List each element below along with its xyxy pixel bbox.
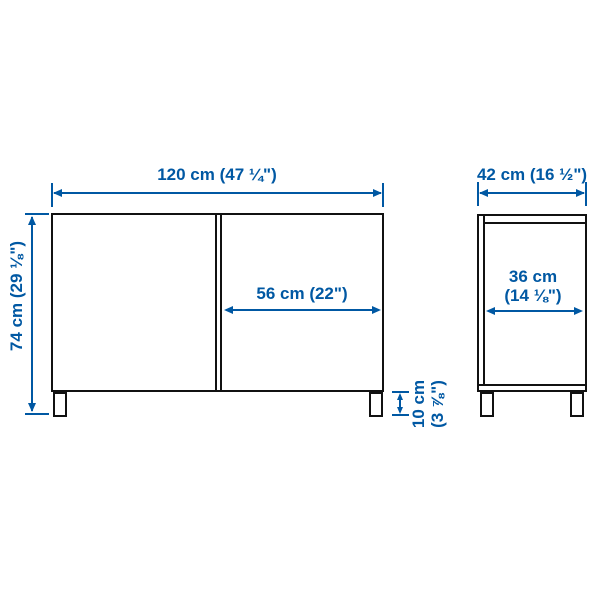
- inner-depth-dimension-line: [488, 310, 581, 312]
- side-top-panel-line: [485, 222, 585, 224]
- side-depth-dimension-line: [480, 192, 584, 194]
- front-height-extension-tick-bottom: [25, 413, 49, 415]
- arrowhead-up-icon: [397, 393, 403, 400]
- inner-depth-label-line2: (14 ⅛"): [473, 286, 593, 305]
- leg-height-label-line2: (3 ⅞"): [428, 369, 447, 439]
- arrowhead-right-icon: [372, 306, 381, 314]
- arrowhead-left-icon: [479, 189, 488, 197]
- side-leg-left: [480, 392, 494, 417]
- side-bottom-panel-line: [479, 384, 585, 386]
- leg-height-label-line1: 10 cm: [409, 369, 428, 439]
- arrowhead-right-icon: [373, 189, 382, 197]
- arrowhead-down-icon: [28, 403, 36, 412]
- arrowhead-right-icon: [576, 189, 585, 197]
- front-height-dimension-line: [31, 217, 33, 411]
- front-leg-right: [369, 392, 383, 417]
- arrowhead-right-icon: [574, 307, 583, 315]
- arrowhead-left-icon: [486, 307, 495, 315]
- front-height-dimension-label: 74 cm (29 ⅛"): [7, 211, 27, 381]
- leg-height-extension-tick-bottom: [392, 414, 409, 416]
- arrowhead-left-icon: [224, 306, 233, 314]
- arrowhead-down-icon: [397, 407, 403, 414]
- front-height-extension-tick-top: [25, 213, 49, 215]
- inner-depth-dimension-label: 36 cm (14 ⅛"): [473, 267, 593, 305]
- door-width-dimension-line: [226, 309, 379, 311]
- arrowhead-up-icon: [28, 216, 36, 225]
- front-width-dimension-label: 120 cm (47 ¼"): [52, 165, 382, 185]
- front-width-extension-tick-right: [382, 183, 384, 207]
- front-leg-left: [53, 392, 67, 417]
- inner-depth-label-line1: 36 cm: [473, 267, 593, 286]
- arrowhead-left-icon: [53, 189, 62, 197]
- side-depth-dimension-label: 42 cm (16 ½"): [457, 165, 600, 185]
- leg-height-dimension-label: 10 cm (3 ⅞"): [409, 369, 445, 439]
- door-width-dimension-label: 56 cm (22"): [222, 284, 382, 304]
- front-width-dimension-line: [54, 192, 381, 194]
- door-divider-line-left: [215, 215, 217, 390]
- dimension-diagram: 120 cm (47 ¼") 74 cm (29 ⅛") 56 cm (22")…: [0, 0, 600, 600]
- side-depth-extension-tick-right: [585, 182, 587, 206]
- side-leg-right: [570, 392, 584, 417]
